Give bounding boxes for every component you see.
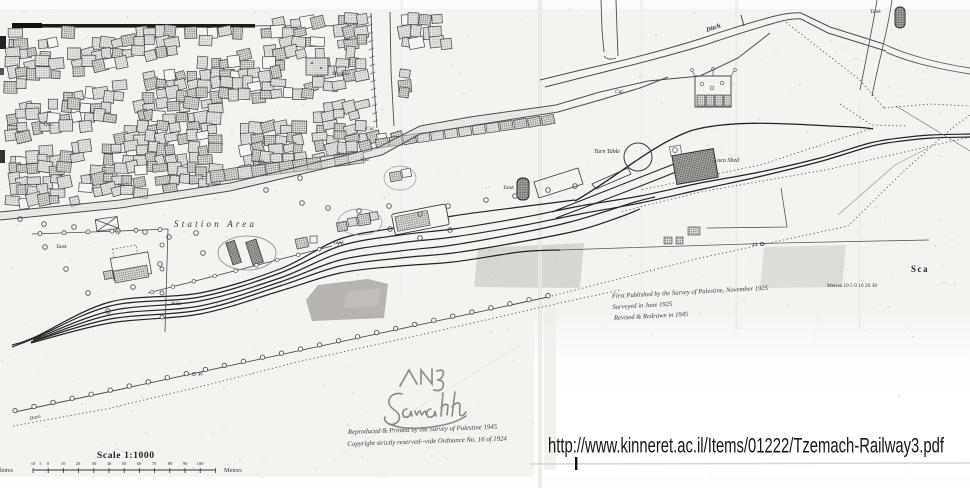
- svg-text:Cul.: Cul.: [361, 157, 370, 163]
- svg-text:44: 44: [752, 243, 758, 248]
- svg-text:O16: O16: [44, 123, 53, 128]
- svg-text:Metres 10 5 0 10: Metres 10 5 0 10 20 30: [827, 283, 877, 289]
- svg-text:W.Co: W.Co: [171, 302, 182, 307]
- svg-text:Turn Table: Turn Table: [594, 149, 620, 155]
- svg-text:70: 70: [152, 461, 157, 466]
- svg-text:90: 90: [183, 461, 188, 466]
- svg-text:Tank: Tank: [503, 185, 514, 191]
- svg-text:Station Area: Station Area: [174, 219, 257, 229]
- svg-text:30: 30: [92, 461, 97, 466]
- svg-text:Sca: Sca: [911, 264, 929, 274]
- svg-text:Cul.: Cul.: [366, 126, 375, 132]
- svg-text:Tank: Tank: [56, 244, 67, 250]
- svg-text:10: 10: [31, 461, 36, 466]
- svg-text:Mosque: Mosque: [331, 71, 350, 77]
- svg-text:100: 100: [197, 461, 205, 466]
- svg-text:50: 50: [122, 461, 127, 466]
- svg-text:http://www.kinneret.ac.il/Item: http://www.kinneret.ac.il/Items/01222/Tz…: [548, 435, 944, 458]
- svg-text:10: 10: [61, 461, 66, 466]
- svg-text:Tank: Tank: [333, 240, 344, 246]
- svg-text:letres: letres: [0, 468, 14, 474]
- svg-text:Loco Shed: Loco Shed: [713, 158, 740, 164]
- svg-text:Tank: Tank: [870, 9, 881, 15]
- svg-text:20: 20: [76, 461, 81, 466]
- svg-text:Scale 1:1000: Scale 1:1000: [97, 451, 155, 461]
- svg-text:Metres: Metres: [224, 467, 242, 474]
- svg-text:60: 60: [137, 461, 142, 466]
- svg-text:80: 80: [168, 461, 173, 466]
- svg-text:40: 40: [107, 461, 112, 466]
- svg-text:Cul.: Cul.: [615, 89, 624, 95]
